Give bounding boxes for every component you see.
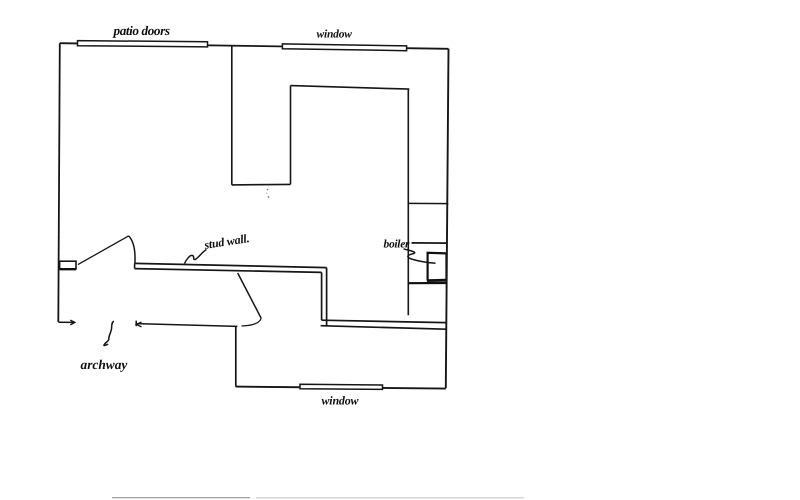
svg-text:stud wall.: stud wall. (202, 231, 250, 252)
svg-text:window: window (322, 394, 360, 408)
svg-text:boiler: boiler (384, 239, 410, 251)
svg-text:archway: archway (81, 357, 128, 372)
svg-text:patio doors: patio doors (113, 23, 170, 38)
svg-text:window: window (317, 29, 353, 41)
